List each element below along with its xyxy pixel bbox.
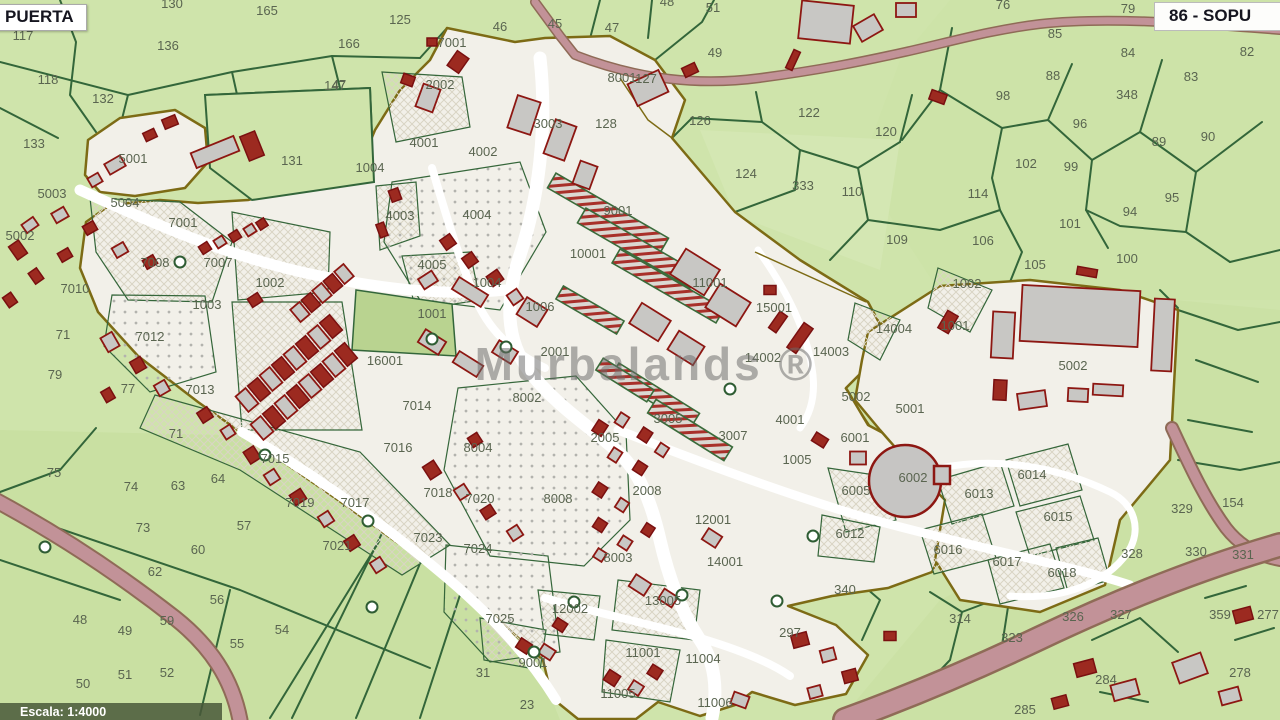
parcel-label: 333 — [792, 178, 814, 193]
parcel-label: 130 — [161, 0, 183, 11]
parcel-label: 51 — [118, 667, 132, 682]
parcel-label: 64 — [211, 471, 225, 486]
parcel-label: 1004 — [473, 275, 502, 290]
parcel-label: 2005 — [591, 430, 620, 445]
parcel-label: 6012 — [836, 526, 865, 541]
parcel-label: 323 — [1001, 630, 1023, 645]
parcel-label: 100 — [1116, 251, 1138, 266]
parcel-label: 5003 — [38, 186, 67, 201]
well-marker-icon — [808, 531, 819, 542]
parcel-label: 1001 — [418, 306, 447, 321]
map-viewport[interactable]: 1301171651661251471361181321331314746454… — [0, 0, 1280, 720]
parcel-label: 132 — [92, 91, 114, 106]
parcel-label: 359 — [1209, 607, 1231, 622]
parcel-label: 11001 — [625, 645, 660, 660]
building — [1068, 388, 1089, 402]
building — [798, 0, 854, 43]
parcel-label: 45 — [548, 16, 562, 31]
parcel-label: 285 — [1014, 702, 1036, 717]
sheet-label-right: 86 - SOPU — [1154, 2, 1280, 31]
parcel-label: 5002 — [1059, 358, 1088, 373]
building — [807, 685, 822, 699]
parcel-label: 327 — [1110, 607, 1132, 622]
parcel-label: 3005 — [654, 411, 683, 426]
parcel-label: 7007 — [204, 255, 233, 270]
parcel-label: 5001 — [896, 401, 925, 416]
parcel-label: 5004 — [111, 195, 140, 210]
parcel-label: 11005 — [600, 686, 635, 701]
parcel-label: 1002 — [953, 276, 982, 291]
parcel-label: 3007 — [719, 428, 748, 443]
parcel-label: 94 — [1123, 204, 1137, 219]
parcel-label: 106 — [972, 233, 994, 248]
parcel-label: 125 — [389, 12, 411, 27]
parcel-label: 4001 — [776, 412, 805, 427]
parcel-label: 165 — [256, 3, 278, 18]
parcel-label: 62 — [148, 564, 162, 579]
parcel-label: 7014 — [403, 398, 432, 413]
parcel-label: 76 — [996, 0, 1010, 12]
parcel-label: 6013 — [965, 486, 994, 501]
parcel-label: 6005 — [842, 483, 871, 498]
well-marker-icon — [175, 257, 186, 268]
parcel-label: 83 — [1184, 69, 1198, 84]
parcel-label: 4004 — [463, 207, 492, 222]
parcel-label: 136 — [157, 38, 179, 53]
parcel-label: 6001 — [841, 430, 870, 445]
scale-indicator: Escala: 1:4000 — [0, 703, 222, 720]
parcel-label: 9001 — [519, 655, 548, 670]
parcel-label: 31 — [476, 665, 490, 680]
parcel-label: 7025 — [486, 611, 515, 626]
parcel-label: 16001 — [367, 353, 403, 368]
building — [850, 452, 866, 465]
parcel-label: 48 — [660, 0, 674, 9]
parcel-label: 133 — [23, 136, 45, 151]
parcel-label: 5001 — [119, 151, 148, 166]
building — [1020, 285, 1141, 347]
parcel-label: 7021 — [323, 538, 352, 553]
parcel-label: 79 — [48, 367, 62, 382]
parcel-label: 102 — [1015, 156, 1037, 171]
parcel-label: 329 — [1171, 501, 1193, 516]
parcel-label: 110 — [842, 184, 863, 199]
parcel-label: 114 — [968, 186, 989, 201]
parcel-label: 154 — [1222, 495, 1244, 510]
parcel-label: 10001 — [570, 246, 606, 261]
parcel-label: 14004 — [876, 321, 912, 336]
parcel-label: 74 — [124, 479, 138, 494]
parcel-label: 8001 — [608, 70, 637, 85]
parcel-label: 7001 — [438, 35, 467, 50]
parcel-label: 11006 — [697, 695, 732, 710]
building — [427, 38, 437, 46]
cadastral-map-canvas[interactable]: 1301171651661251471361181321331314746454… — [0, 0, 1280, 720]
parcel-label: 47 — [332, 77, 346, 92]
parcel-label: 4005 — [418, 257, 447, 272]
parcel-label: 89 — [1152, 134, 1166, 149]
parcel-label: 49 — [708, 45, 722, 60]
parcel-label: 7001 — [169, 215, 198, 230]
parcel-label: 90 — [1201, 129, 1215, 144]
parcel-label: 14001 — [707, 554, 743, 569]
parcel-label: 314 — [949, 611, 971, 626]
parcel-label: 63 — [171, 478, 185, 493]
parcel-label: 73 — [136, 520, 150, 535]
parcel-label: 15001 — [756, 300, 792, 315]
parcel-label: 7019 — [286, 495, 315, 510]
building — [842, 668, 859, 683]
parcel-label: 99 — [1064, 159, 1078, 174]
parcel-label: 7023 — [414, 530, 443, 545]
parcel-label: 166 — [338, 36, 360, 51]
sheet-label-left: PUERTA — [0, 4, 87, 31]
parcel-label: 7020 — [466, 491, 495, 506]
parcel-label: 331 — [1232, 547, 1254, 562]
parcel-label: 88 — [1046, 68, 1060, 83]
parcel-label: 328 — [1121, 546, 1143, 561]
parcel-label: 4003 — [386, 208, 415, 223]
parcel-label: 56 — [210, 592, 224, 607]
parcel-label: 1002 — [256, 275, 285, 290]
parcel-label: 326 — [1062, 609, 1084, 624]
parcel-label: 7010 — [61, 281, 90, 296]
building — [993, 380, 1007, 401]
parcel-label: 8008 — [544, 491, 573, 506]
parcel-label: 12002 — [552, 601, 588, 616]
parcel-label: 79 — [1121, 1, 1135, 16]
building — [991, 311, 1015, 358]
parcel-label: 52 — [160, 665, 174, 680]
building — [1151, 299, 1175, 372]
parcel-label: 128 — [595, 116, 617, 131]
parcel-label: 82 — [1240, 44, 1254, 59]
parcel-label: 122 — [798, 105, 820, 120]
parcel-label: 6017 — [993, 554, 1022, 569]
parcel-label: 7008 — [141, 255, 170, 270]
parcel-label: 46 — [493, 19, 507, 34]
parcel-label: 284 — [1095, 672, 1117, 687]
well-marker-icon — [427, 334, 438, 345]
parcel-label: 48 — [73, 612, 87, 627]
parcel-label: 4002 — [469, 144, 498, 159]
building — [884, 632, 896, 641]
parcel-label: 12001 — [695, 512, 731, 527]
parcel-label: 95 — [1165, 190, 1179, 205]
parcel-label: 1004 — [356, 160, 385, 175]
parcel-label: 1001 — [941, 318, 970, 333]
watermark-text: Murbalands ® — [475, 338, 816, 390]
parcel-label: 7016 — [384, 440, 413, 455]
parcel-label: 71 — [56, 327, 70, 342]
well-marker-icon — [772, 596, 783, 607]
parcel-label: 101 — [1059, 216, 1081, 231]
parcel-label: 6002 — [899, 470, 928, 485]
parcel-label: 348 — [1116, 87, 1138, 102]
parcel-label: 14003 — [813, 344, 849, 359]
parcel-label: 75 — [47, 465, 61, 480]
parcel-label: 54 — [275, 622, 289, 637]
parcel-label: 3003 — [534, 116, 563, 131]
parcel-label: 2002 — [426, 77, 455, 92]
parcel-label: 5002 — [6, 228, 35, 243]
parcel-label: 4001 — [410, 135, 439, 150]
parcel-label: 6016 — [934, 542, 963, 557]
parcel-label: 1005 — [783, 452, 812, 467]
parcel-label: 60 — [191, 542, 205, 557]
parcel-label: 126 — [689, 113, 711, 128]
parcel-label: 55 — [230, 636, 244, 651]
parcel-label: 8002 — [513, 390, 542, 405]
parcel-label: 5002 — [842, 389, 871, 404]
parcel-label: 7018 — [424, 485, 453, 500]
parcel-label: 77 — [121, 381, 135, 396]
parcel-label: 59 — [160, 613, 174, 628]
parcel-label: 6018 — [1048, 565, 1077, 580]
parcel-label: 124 — [735, 166, 757, 181]
parcel-label: 120 — [875, 124, 897, 139]
parcel-label: 49 — [118, 623, 132, 638]
parcel-label: 71 — [169, 426, 183, 441]
parcel-label: 297 — [779, 625, 801, 640]
parcel-label: 7015 — [261, 451, 290, 466]
parcel-label: 7013 — [186, 382, 215, 397]
parcel-label: 127 — [635, 71, 657, 86]
parcel-label: 50 — [76, 676, 90, 691]
parcel-label: 8003 — [604, 550, 633, 565]
well-marker-icon — [363, 516, 374, 527]
building — [1017, 390, 1047, 410]
parcel-label: 96 — [1073, 116, 1087, 131]
building — [896, 3, 916, 17]
parcel-label: 9001 — [604, 203, 633, 218]
parcel-label: 340 — [834, 582, 856, 597]
parcel-label: 11001 — [692, 275, 727, 290]
building — [820, 647, 837, 662]
parcel-label: 6014 — [1018, 467, 1047, 482]
parcel-label: 2008 — [633, 483, 662, 498]
parcel-label: 47 — [605, 20, 619, 35]
parcel-label: 57 — [237, 518, 251, 533]
parcel-label: 105 — [1024, 257, 1046, 272]
parcel-label: 1003 — [193, 297, 222, 312]
parcel-label: 84 — [1121, 45, 1135, 60]
parcel-label: 8004 — [464, 440, 493, 455]
parcel-label: 7024 — [464, 541, 493, 556]
well-marker-icon — [367, 602, 378, 613]
parcel-label: 98 — [996, 88, 1010, 103]
parcel-label: 109 — [886, 232, 908, 247]
parcel-label: 7017 — [341, 495, 370, 510]
parcel-label: 330 — [1185, 544, 1207, 559]
parcel-label: 278 — [1229, 665, 1251, 680]
parcel-label: 11004 — [685, 651, 720, 666]
building — [764, 286, 776, 295]
parcel-label: 13005 — [645, 593, 681, 608]
parcel-label: 118 — [38, 72, 59, 87]
parcel-label: 277 — [1257, 607, 1279, 622]
well-marker-icon — [40, 542, 51, 553]
parcel-label: 85 — [1048, 26, 1062, 41]
parcel-label: 131 — [281, 153, 303, 168]
parcel-label: 23 — [520, 697, 534, 712]
parcel-label: 51 — [706, 0, 720, 15]
parcel-label: 7012 — [136, 329, 165, 344]
parcel-label: 6015 — [1044, 509, 1073, 524]
building — [1093, 384, 1124, 397]
parcel-label: 1006 — [526, 299, 555, 314]
